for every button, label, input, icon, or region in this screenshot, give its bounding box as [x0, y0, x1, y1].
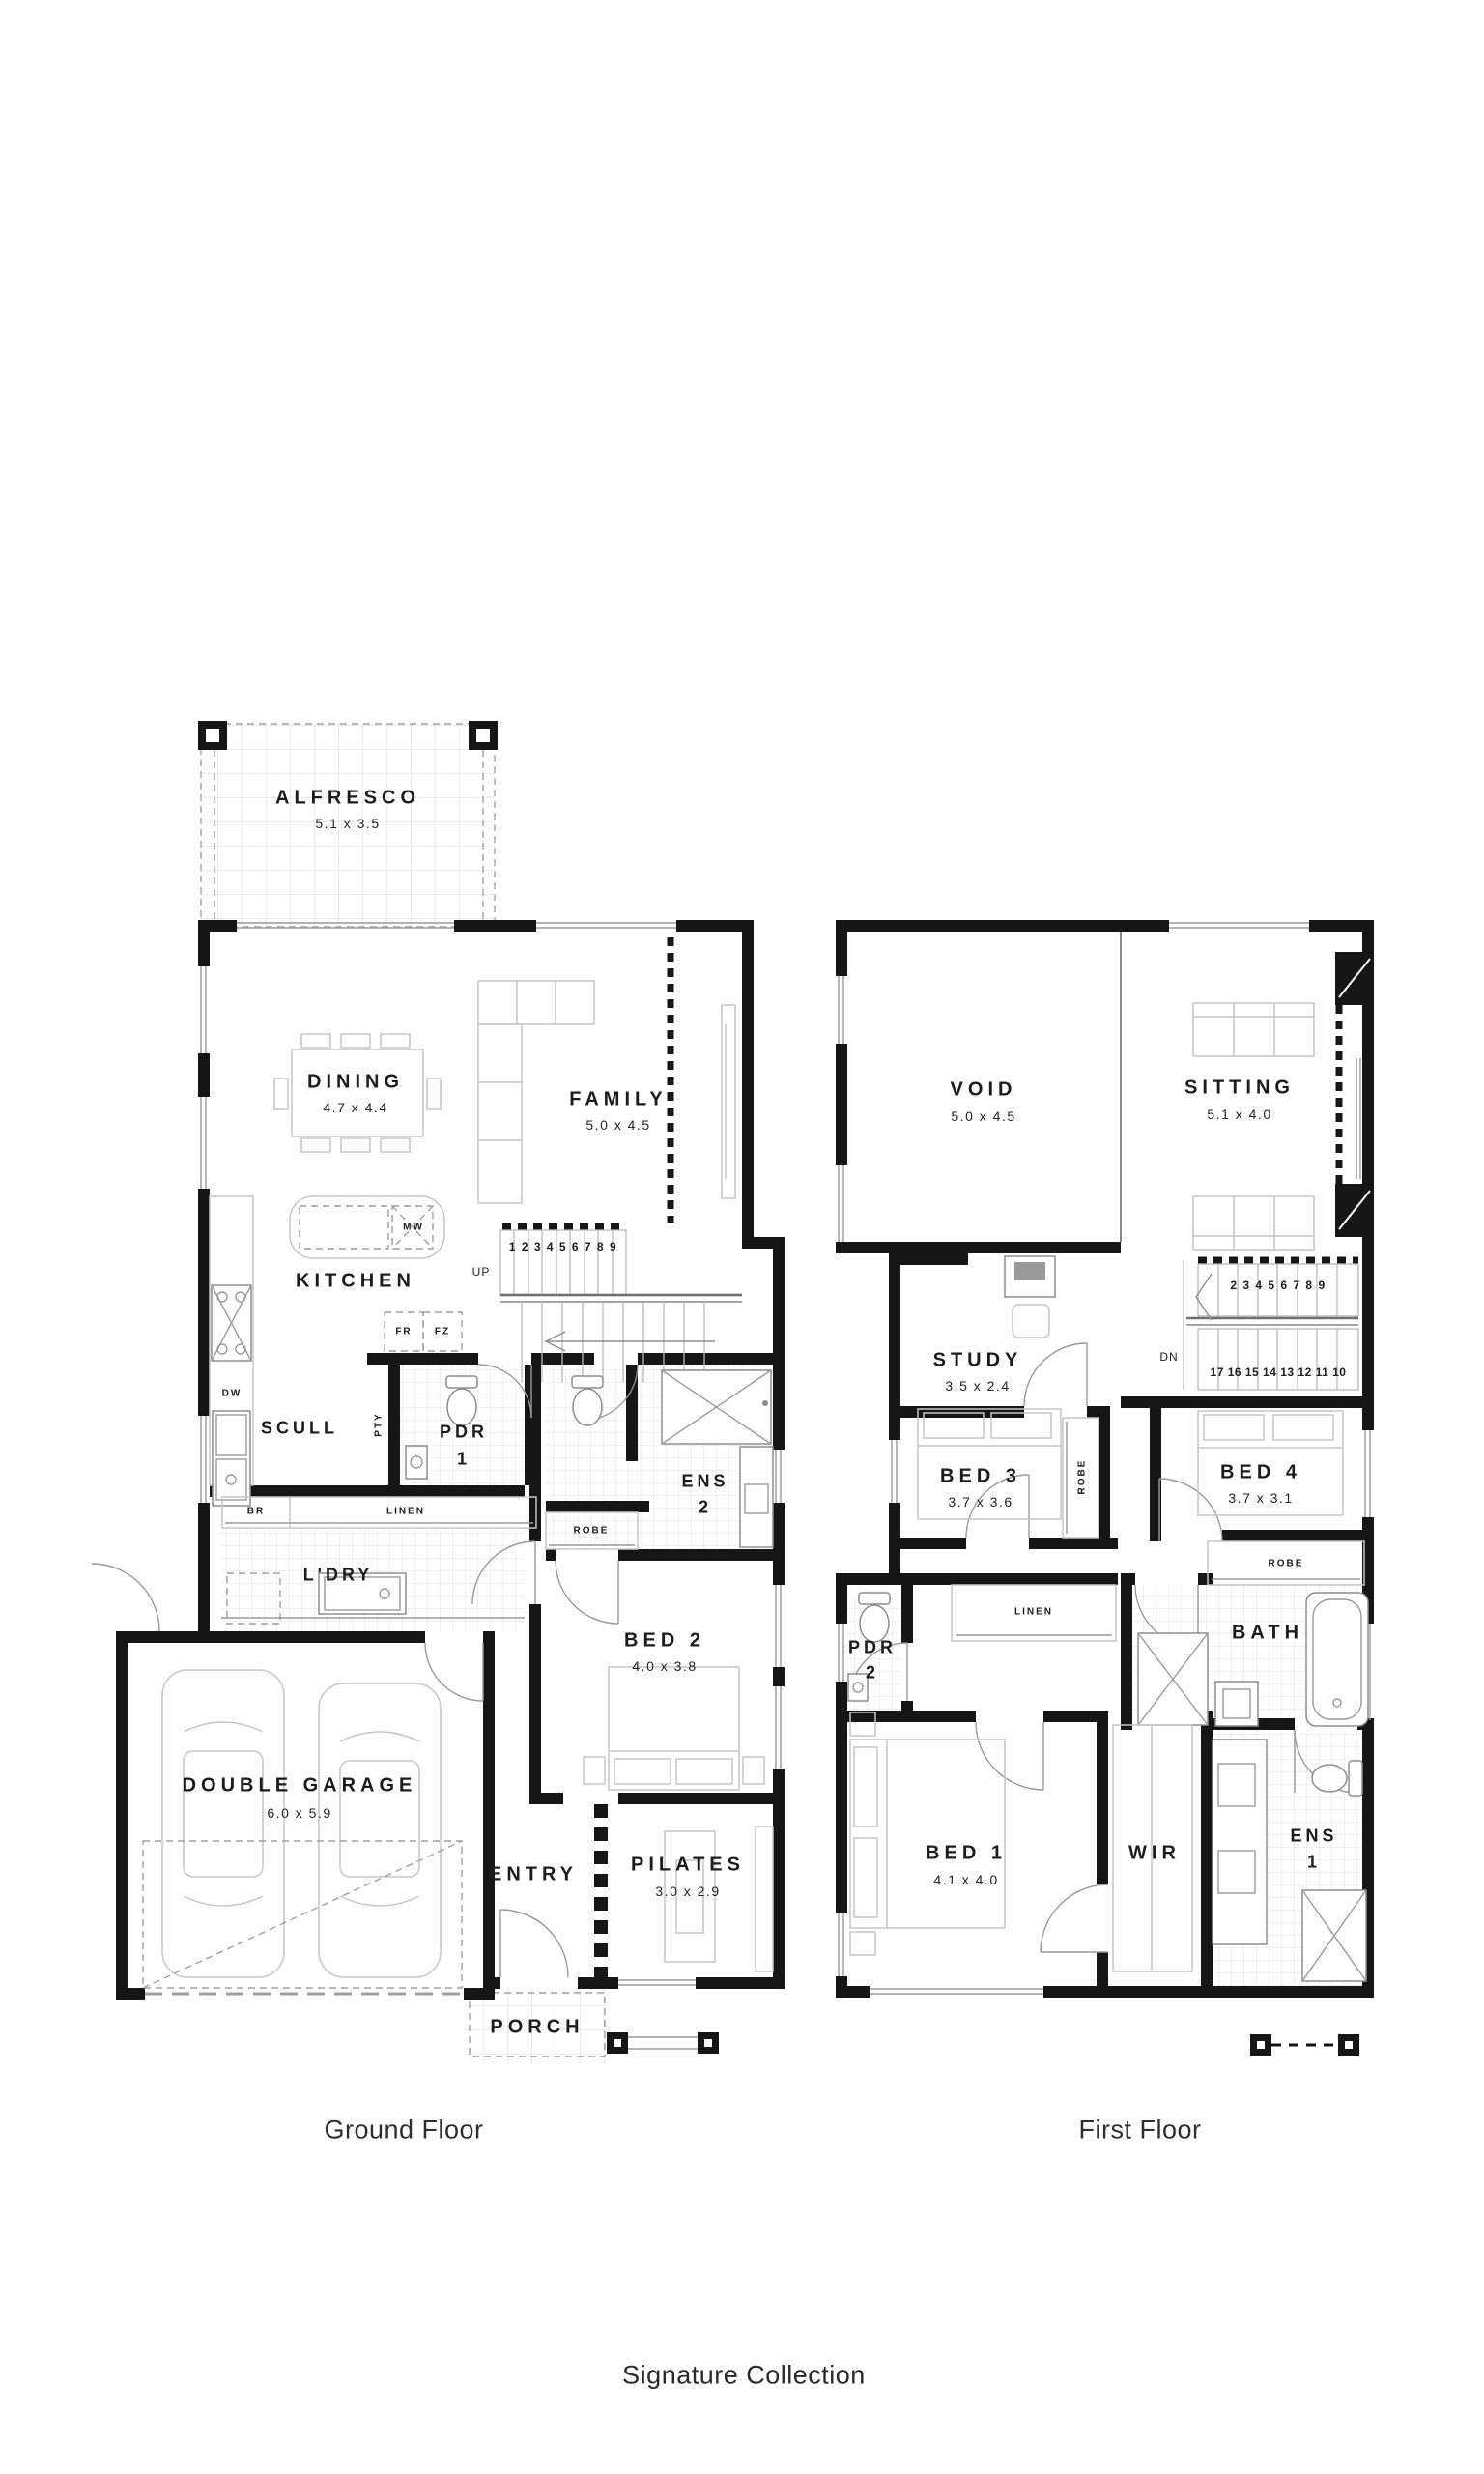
stairs-treads-gf: 1 2 3 4 5 6 7 8 9 — [509, 1240, 617, 1253]
room-dims-bed2: 4.0 x 3.8 — [632, 1658, 697, 1674]
room-dims-bed4: 3.7 x 3.1 — [1228, 1490, 1293, 1506]
room-dims-family: 5.0 x 4.5 — [585, 1117, 650, 1133]
room-dims-garage: 6.0 x 5.9 — [267, 1805, 331, 1821]
room-label-scull: SCULL — [261, 1419, 338, 1439]
room-number-ens2: 2 — [699, 1498, 712, 1518]
linen-label-gf: LINEN — [386, 1507, 425, 1517]
room-dims-alfresco: 5.1 x 3.5 — [315, 816, 380, 831]
dishwasher-label: DW — [222, 1389, 243, 1399]
room-label-void: VOID — [951, 1079, 1017, 1102]
room-dims-sitting: 5.1 x 4.0 — [1207, 1107, 1271, 1122]
broom-label: BR — [247, 1507, 265, 1517]
stairs-up-label: UP — [472, 1265, 491, 1279]
stairs-treads-ff-lower: 17 16 15 14 13 12 11 10 — [1211, 1366, 1347, 1379]
room-label-entry: ENTRY — [489, 1864, 578, 1886]
fridge-label: FR — [395, 1327, 412, 1338]
room-label-sitting: SITTING — [1184, 1078, 1295, 1100]
room-number-pdr2: 2 — [866, 1663, 879, 1683]
room-label-garage: DOUBLE GARAGE — [183, 1775, 417, 1798]
floor-plan-drawing — [0, 0, 1484, 2474]
room-label-ens1: ENS — [1290, 1827, 1337, 1847]
room-label-ldry: L'DRY — [303, 1566, 374, 1586]
room-label-bed3: BED 3 — [940, 1466, 1021, 1488]
room-dims-pilates: 3.0 x 2.9 — [655, 1884, 720, 1899]
floor-plan-sheet: ALFRESCO 5.1 x 3.5 DINING 4.7 x 4.4 FAMI… — [0, 0, 1484, 2474]
room-number-pdr1: 1 — [457, 1450, 471, 1470]
room-label-pdr2: PDR — [848, 1638, 897, 1658]
room-label-bed2: BED 2 — [624, 1630, 705, 1653]
room-label-study: STUDY — [933, 1350, 1023, 1372]
room-dims-void: 5.0 x 4.5 — [951, 1108, 1015, 1124]
room-label-pilates: PILATES — [631, 1855, 745, 1877]
room-label-family: FAMILY — [569, 1089, 668, 1111]
linen-label-ff: LINEN — [1014, 1607, 1053, 1618]
room-label-kitchen: KITCHEN — [296, 1271, 415, 1293]
room-dims-dining: 4.7 x 4.4 — [323, 1100, 387, 1115]
caption-first-floor: First Floor — [1079, 2115, 1202, 2145]
freezer-label: FZ — [435, 1327, 450, 1338]
room-label-pdr1: PDR — [440, 1423, 488, 1443]
caption-ground-floor: Ground Floor — [324, 2115, 483, 2145]
robe-label-gf: ROBE — [574, 1526, 610, 1537]
room-label-dining: DINING — [307, 1072, 404, 1094]
room-label-bed4: BED 4 — [1220, 1462, 1301, 1484]
robe-label-bed3: ROBE — [1077, 1459, 1088, 1495]
microwave-label: MW — [403, 1223, 424, 1233]
brand-signature-collection: Signature Collection — [622, 2361, 866, 2391]
room-label-wir: WIR — [1128, 1843, 1181, 1865]
room-label-ens2: ENS — [681, 1472, 728, 1492]
room-label-porch: PORCH — [490, 2017, 584, 2039]
room-dims-study: 3.5 x 2.4 — [945, 1378, 1010, 1394]
room-label-bath: BATH — [1232, 1623, 1303, 1645]
room-dims-bed1: 4.1 x 4.0 — [933, 1872, 998, 1887]
stairs-treads-ff-upper: 2 3 4 5 6 7 8 9 — [1230, 1279, 1326, 1292]
room-number-ens1: 1 — [1307, 1853, 1321, 1873]
room-label-alfresco: ALFRESCO — [275, 788, 420, 810]
room-dims-bed3: 3.7 x 3.6 — [948, 1494, 1013, 1510]
stairs-dn-label: DN — [1159, 1350, 1178, 1364]
pantry-label: PTY — [374, 1412, 385, 1436]
robe-label-bed4: ROBE — [1269, 1559, 1304, 1569]
room-label-bed1: BED 1 — [926, 1843, 1007, 1865]
